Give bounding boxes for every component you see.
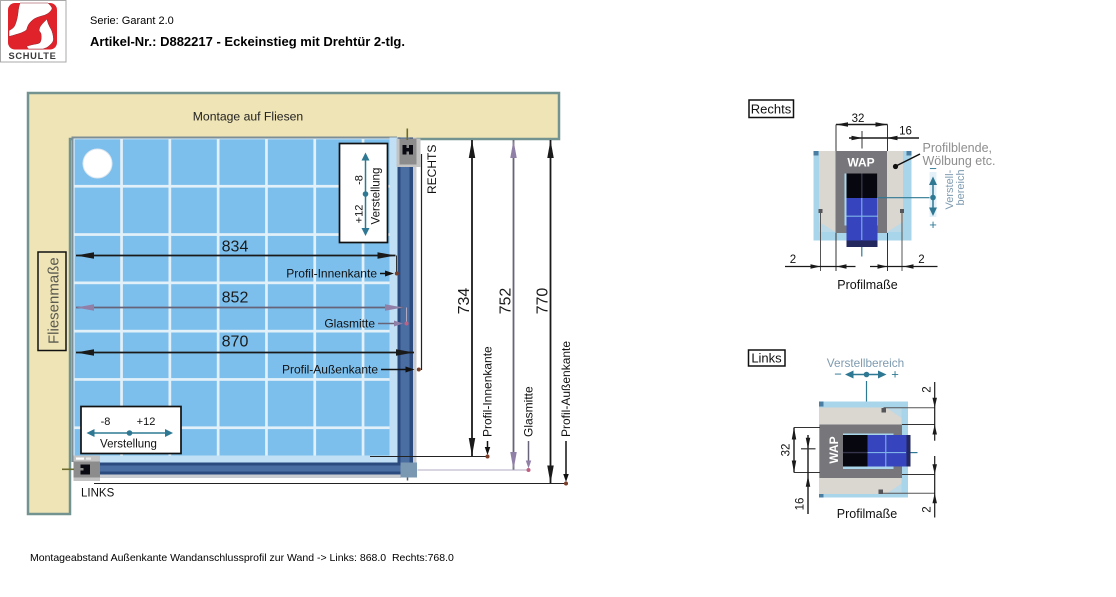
svg-text:+: +: [929, 217, 937, 232]
svg-text:-8: -8: [354, 175, 366, 185]
svg-text:Glasmitte: Glasmitte: [522, 386, 536, 437]
svg-text:2: 2: [790, 254, 796, 266]
svg-text:RECHTS: RECHTS: [425, 145, 439, 194]
svg-text:Profil-Außenkante: Profil-Außenkante: [559, 341, 573, 437]
svg-text:16: 16: [795, 498, 807, 511]
svg-text:-8: -8: [101, 416, 111, 428]
svg-text:870: 870: [222, 334, 249, 351]
svg-text:2: 2: [918, 254, 924, 266]
svg-text:852: 852: [222, 290, 249, 307]
svg-text:−: −: [929, 161, 937, 176]
svg-text:LINKS: LINKS: [81, 488, 115, 500]
svg-text:2: 2: [922, 506, 934, 512]
svg-text:Serie: Garant 2.0: Serie: Garant 2.0: [90, 15, 174, 27]
svg-text:WAP: WAP: [827, 436, 841, 463]
svg-text:Profilblende,: Profilblende,: [923, 141, 993, 155]
svg-text:Glasmitte: Glasmitte: [324, 317, 375, 331]
svg-text:752: 752: [498, 288, 515, 315]
svg-text:+12: +12: [354, 205, 366, 224]
svg-text:Verstellung: Verstellung: [371, 168, 383, 225]
svg-text:Profilmaße: Profilmaße: [837, 278, 897, 292]
svg-text:Profil-Innenkante: Profil-Innenkante: [481, 346, 495, 437]
svg-text:SCHULTE: SCHULTE: [8, 51, 56, 61]
svg-text:Profil-Innenkante: Profil-Innenkante: [286, 267, 377, 281]
svg-text:bereich: bereich: [955, 169, 967, 205]
svg-text:32: 32: [781, 444, 793, 457]
svg-text:+: +: [891, 367, 899, 382]
svg-text:Montageabstand Außenkante Wand: Montageabstand Außenkante Wandanschlussp…: [30, 552, 454, 564]
svg-text:770: 770: [535, 288, 552, 315]
svg-text:+12: +12: [137, 416, 156, 428]
svg-text:734: 734: [456, 288, 473, 315]
svg-text:Artikel-Nr.: D882217 - Eckein: Artikel-Nr.: D882217 - Eckeinstieg mit D…: [90, 34, 405, 49]
svg-text:WAP: WAP: [847, 156, 874, 170]
svg-text:−: −: [834, 367, 842, 382]
svg-text:Links: Links: [751, 351, 782, 366]
svg-text:Fliesenmaße: Fliesenmaße: [46, 257, 63, 344]
svg-text:16: 16: [899, 126, 912, 138]
svg-text:Profilmaße: Profilmaße: [837, 507, 897, 521]
svg-text:834: 834: [222, 239, 249, 256]
svg-text:Profil-Außenkante: Profil-Außenkante: [282, 363, 378, 377]
svg-text:2: 2: [922, 386, 934, 392]
svg-text:Verstellung: Verstellung: [100, 439, 157, 451]
svg-text:Rechts: Rechts: [751, 102, 792, 117]
svg-text:32: 32: [852, 113, 865, 125]
svg-text:Montage auf Fliesen: Montage auf Fliesen: [193, 110, 303, 124]
